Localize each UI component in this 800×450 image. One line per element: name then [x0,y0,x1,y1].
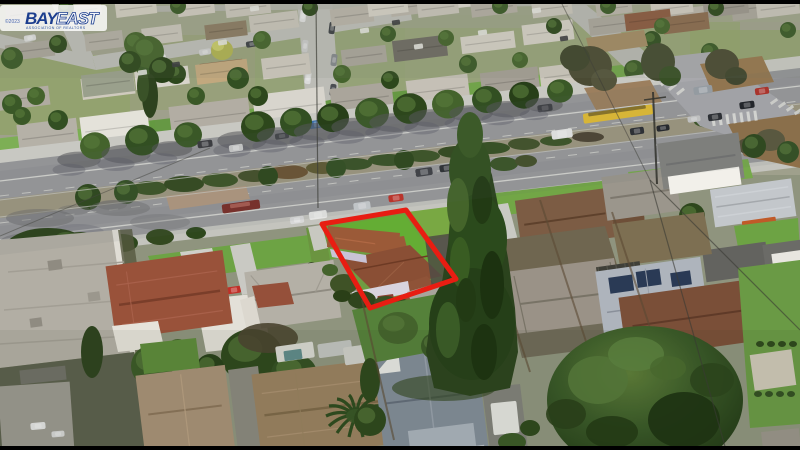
svg-text:ASSOCIATION OF REALTORS: ASSOCIATION OF REALTORS [26,26,86,30]
svg-text:©2023: ©2023 [5,18,20,25]
